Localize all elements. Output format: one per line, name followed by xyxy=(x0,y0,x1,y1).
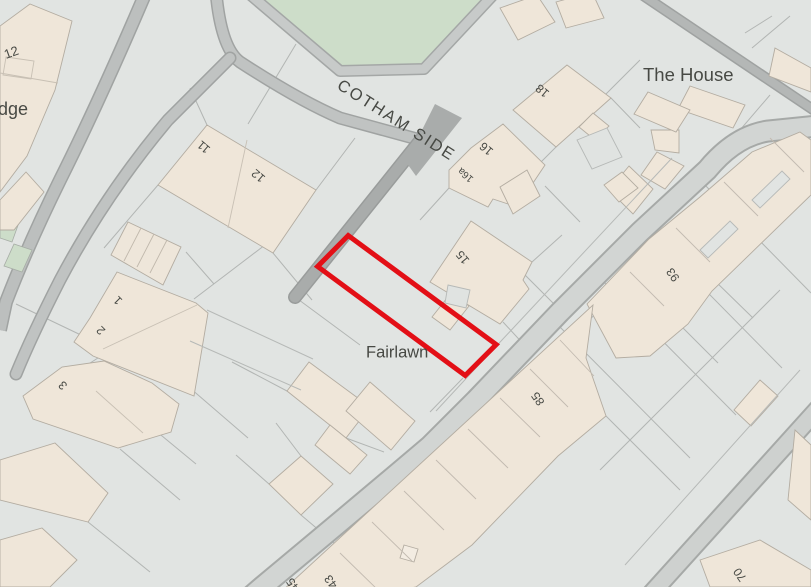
svg-text:Fairlawn: Fairlawn xyxy=(366,344,428,362)
svg-text:dge: dge xyxy=(0,99,28,119)
svg-text:The House: The House xyxy=(643,64,734,85)
